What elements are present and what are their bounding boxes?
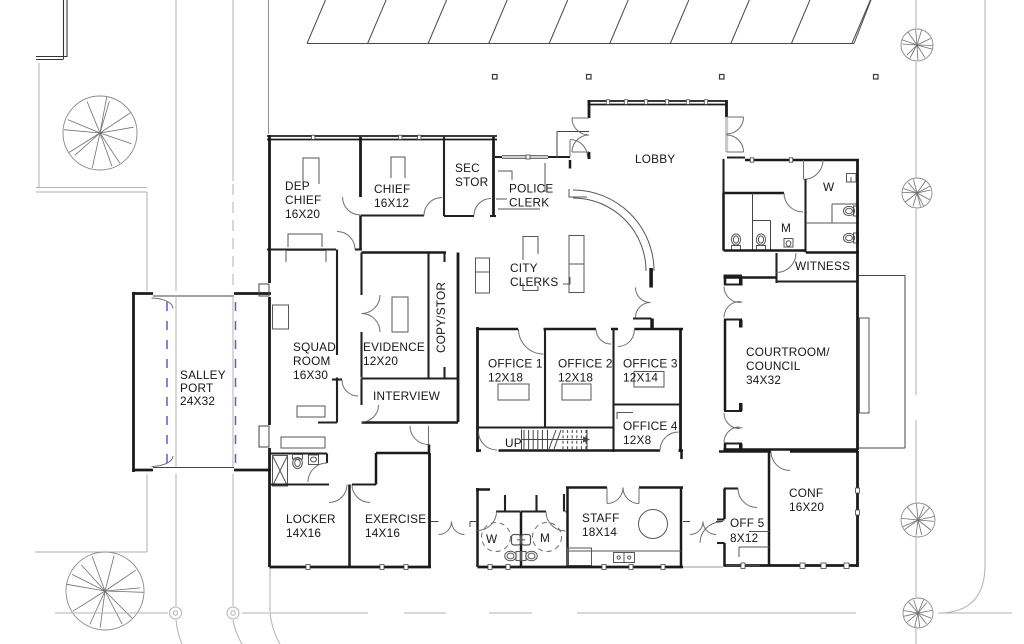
svg-text:ROOM: ROOM (293, 354, 331, 368)
svg-text:COURTROOM/: COURTROOM/ (746, 345, 830, 359)
svg-text:W: W (823, 180, 835, 194)
svg-text:24X32: 24X32 (180, 394, 215, 408)
svg-text:CITY: CITY (510, 261, 538, 275)
svg-text:14X16: 14X16 (286, 526, 321, 540)
svg-text:OFFICE 2: OFFICE 2 (558, 357, 613, 371)
svg-text:16X12: 16X12 (374, 196, 409, 210)
svg-text:STOR: STOR (455, 175, 488, 189)
svg-text:SEC: SEC (455, 161, 480, 175)
svg-text:UP: UP (505, 436, 522, 450)
svg-text:OFFICE 1: OFFICE 1 (488, 357, 543, 371)
svg-text:SQUAD: SQUAD (293, 340, 336, 354)
svg-text:WITNESS: WITNESS (795, 259, 850, 273)
svg-text:COPY/STOR: COPY/STOR (434, 282, 448, 353)
svg-text:12X8: 12X8 (623, 433, 652, 447)
svg-text:12X14: 12X14 (623, 371, 658, 385)
svg-text:STAFF: STAFF (582, 511, 619, 525)
svg-text:12X18: 12X18 (488, 371, 523, 385)
svg-text:34X32: 34X32 (746, 373, 781, 387)
svg-text:M: M (781, 221, 791, 235)
svg-text:PORT: PORT (180, 381, 213, 395)
svg-text:16X20: 16X20 (789, 500, 824, 514)
svg-text:CHIEF: CHIEF (285, 193, 321, 207)
svg-text:OFFICE 3: OFFICE 3 (623, 357, 678, 371)
svg-text:16X20: 16X20 (285, 207, 320, 221)
svg-text:CLERKS: CLERKS (510, 275, 558, 289)
svg-text:M: M (540, 531, 550, 545)
svg-text:14X16: 14X16 (365, 526, 400, 540)
svg-text:LOCKER: LOCKER (286, 512, 336, 526)
svg-text:CONF: CONF (789, 486, 823, 500)
svg-text:COUNCIL: COUNCIL (746, 359, 801, 373)
svg-text:16X30: 16X30 (293, 368, 328, 382)
svg-text:12X18: 12X18 (558, 371, 593, 385)
svg-text:8X12: 8X12 (730, 531, 758, 545)
svg-text:OFFICE 4: OFFICE 4 (623, 419, 678, 433)
svg-text:OFF 5: OFF 5 (730, 516, 765, 530)
svg-text:LOBBY: LOBBY (635, 152, 675, 166)
svg-text:W: W (486, 532, 498, 546)
svg-text:POLICE: POLICE (509, 182, 553, 196)
svg-text:EXERCISE: EXERCISE (365, 512, 426, 526)
svg-text:CHIEF: CHIEF (374, 182, 410, 196)
svg-text:18X14: 18X14 (582, 525, 617, 539)
svg-text:CLERK: CLERK (509, 196, 549, 210)
svg-text:DEP: DEP (285, 179, 310, 193)
svg-text:12X20: 12X20 (363, 354, 398, 368)
svg-text:SALLEY: SALLEY (180, 368, 226, 382)
svg-text:INTERVIEW: INTERVIEW (373, 389, 441, 403)
svg-text:EVIDENCE: EVIDENCE (363, 340, 425, 354)
